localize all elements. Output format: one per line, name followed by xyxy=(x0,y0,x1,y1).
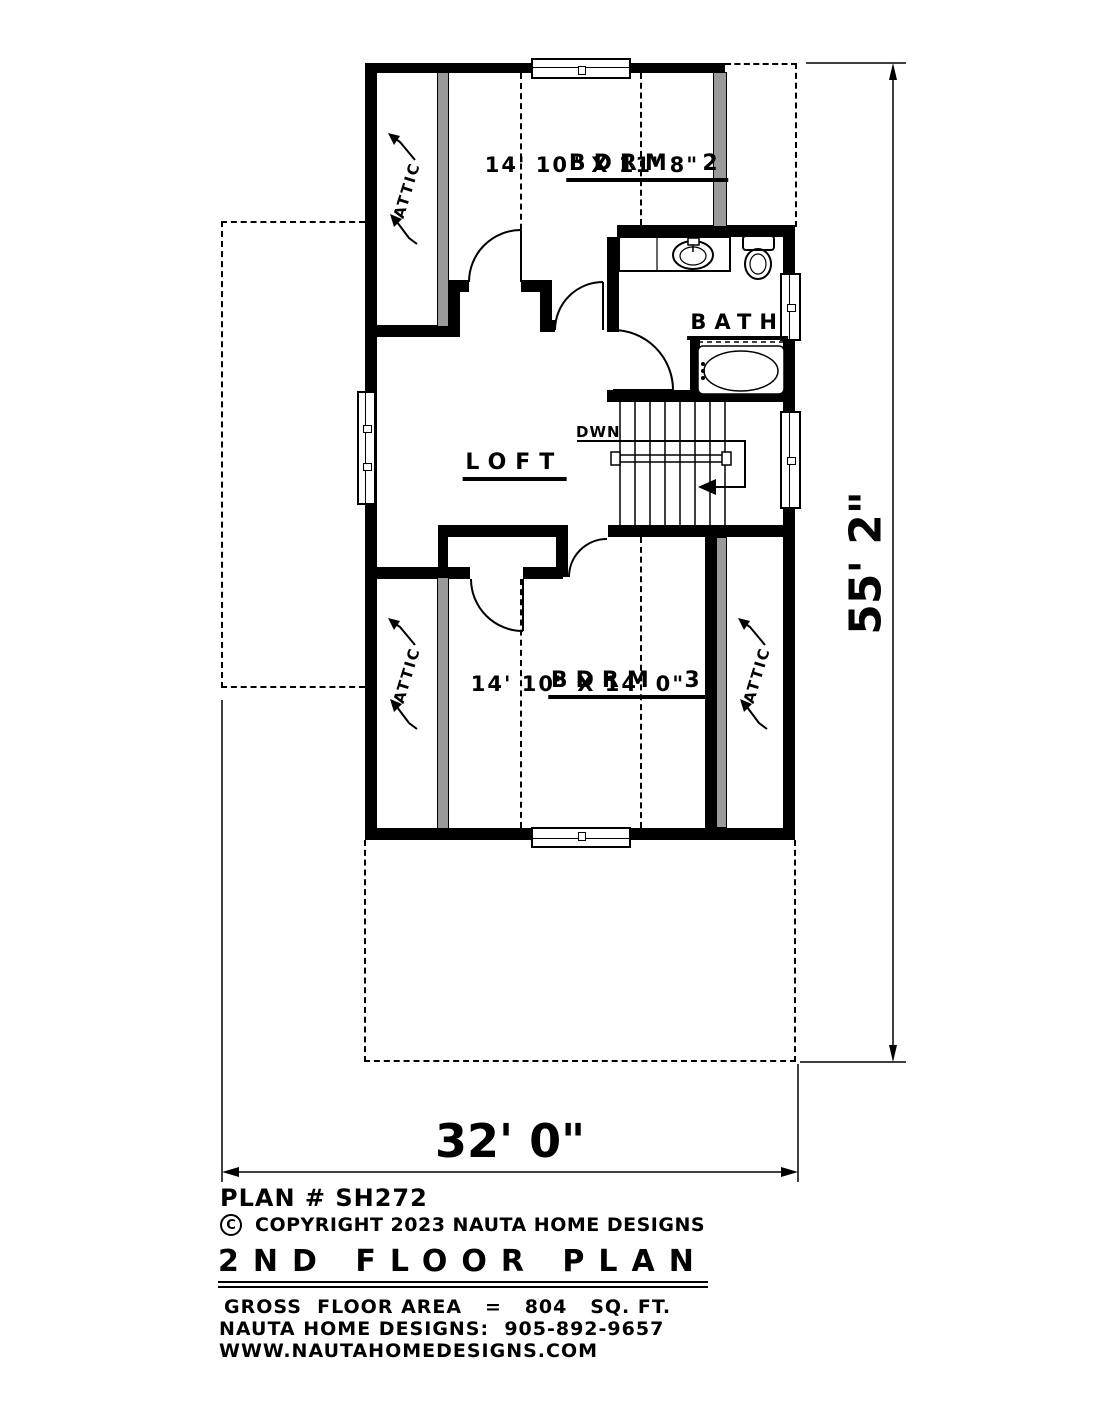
door-bdrm3 xyxy=(471,579,523,631)
floor-plan-page: ATTIC ATTIC ATTIC BDRM 2 14' 10" X 11' 8… xyxy=(0,0,1100,1424)
phone-line: NAUTA HOME DESIGNS: 905-892-9657 xyxy=(219,1318,664,1340)
dimension-width-label: 32' 0" xyxy=(435,1114,585,1168)
svg-text:ATTIC: ATTIC xyxy=(390,160,424,221)
bdrm3-dims: 14' 10" X 14' 0" xyxy=(471,672,685,696)
svg-text:ATTIC: ATTIC xyxy=(740,645,774,706)
gross-area-line: GROSS FLOOR AREA = 804 SQ. FT. xyxy=(224,1296,671,1318)
bath-label-text: BATH xyxy=(687,310,788,340)
stair-handrail xyxy=(611,452,731,465)
loft-label-text: LOFT xyxy=(462,450,566,481)
door-hall-bottom xyxy=(569,539,607,577)
bdrm2-dims: 14' 10" X 11' 8" xyxy=(485,153,699,177)
copyright-row: C COPYRIGHT 2023 NAUTA HOME DESIGNS xyxy=(220,1214,705,1236)
website-line: WWW.NAUTAHOMEDESIGNS.COM xyxy=(219,1340,598,1362)
attic-label-bottom-right: ATTIC xyxy=(738,618,774,729)
sheet-title: 2ND FLOOR PLAN xyxy=(218,1244,708,1288)
door-hall-top xyxy=(555,282,603,330)
attic-label-top-left: ATTIC xyxy=(388,133,424,244)
copyright-text: COPYRIGHT 2023 NAUTA HOME DESIGNS xyxy=(255,1214,705,1236)
plan-number: PLAN # SH272 xyxy=(220,1184,428,1212)
dimension-height-label: 55' 2" xyxy=(841,491,892,635)
stair-direction-arrow xyxy=(577,441,745,495)
loft-label: LOFT xyxy=(396,425,567,506)
dimension-line-bottom xyxy=(222,700,798,1182)
door-bdrm2 xyxy=(469,230,521,282)
dwn-label: DWN xyxy=(576,423,621,441)
copyright-icon: C xyxy=(220,1214,242,1236)
toilet xyxy=(743,236,774,279)
stair-treads xyxy=(620,402,725,525)
svg-text:ATTIC: ATTIC xyxy=(390,645,424,706)
bath-label: BATH xyxy=(626,286,788,364)
attic-label-bottom-left: ATTIC xyxy=(388,618,424,729)
